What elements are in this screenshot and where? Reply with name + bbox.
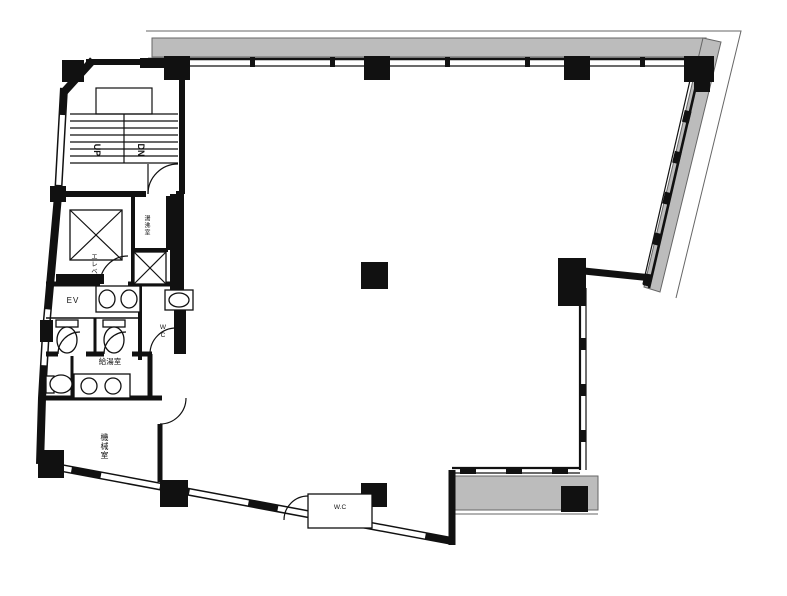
toilet-label: WC xyxy=(159,312,166,352)
floor-plan-drawing xyxy=(0,0,787,596)
water-heater-room-label: 湯沸室 xyxy=(143,204,149,246)
kitchen-counter xyxy=(74,374,130,398)
pipe-shaft xyxy=(134,252,166,284)
elevator-label: エレベ xyxy=(89,244,96,284)
floor-plan: UP DN エレベ 湯沸室 EV WC 給湯室 機械室 W.C xyxy=(0,0,787,596)
elevator-hall-label: EV xyxy=(56,294,90,308)
wall-box-label: W.C xyxy=(310,502,370,514)
stairs-down-label: DN xyxy=(133,137,149,163)
stairs-up-label: UP xyxy=(89,137,105,163)
sinks xyxy=(96,286,193,312)
machine-room-label: 機械室 xyxy=(100,422,108,470)
kitchenette-label: 給湯室 xyxy=(74,355,146,369)
staircase xyxy=(70,88,178,163)
